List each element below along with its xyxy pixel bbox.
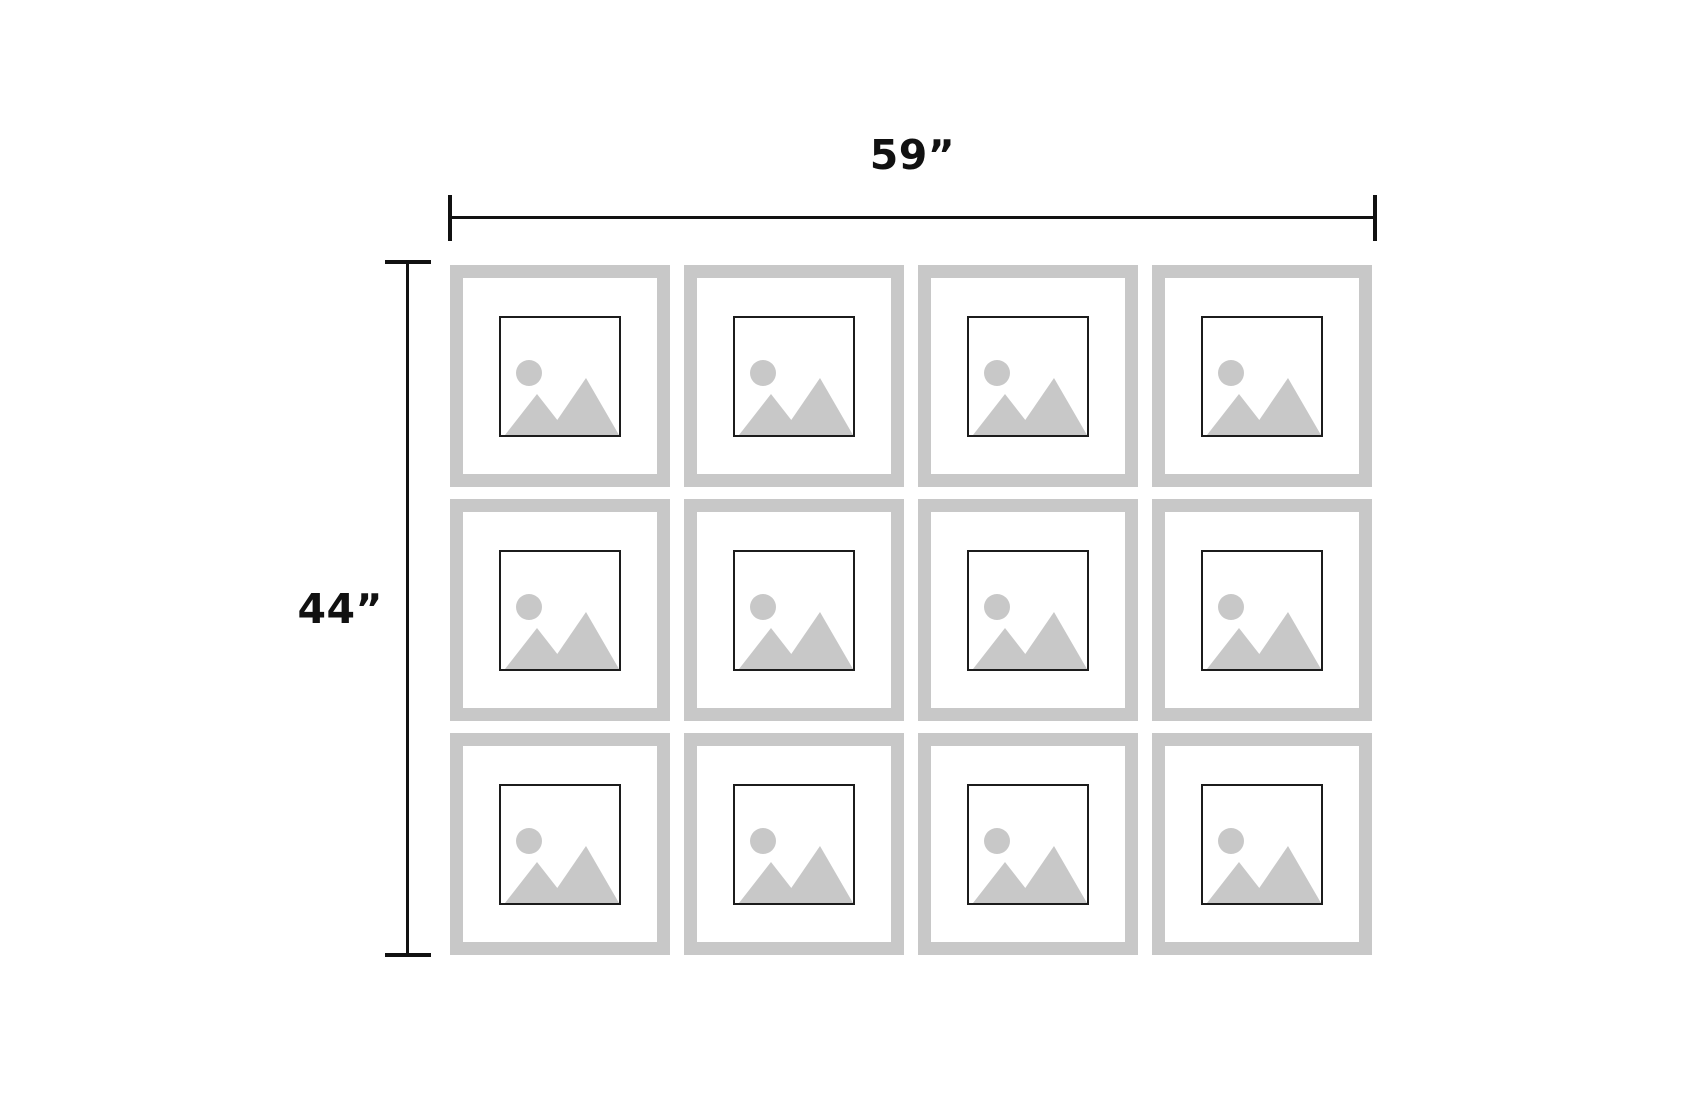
photo-placeholder [499,784,621,905]
image-placeholder-icon [735,318,853,435]
frames-grid [450,265,1372,955]
photo-placeholder [967,316,1089,437]
picture-frame [1152,733,1372,955]
photo-placeholder [499,550,621,671]
picture-frame [684,265,904,487]
photo-placeholder [1201,316,1323,437]
picture-frame [684,733,904,955]
image-placeholder-icon [969,552,1087,669]
photo-placeholder [733,550,855,671]
width-dimension-line [450,216,1375,219]
image-placeholder-icon [969,318,1087,435]
height-dimension-label: 44” [233,585,383,633]
image-placeholder-icon [735,786,853,903]
picture-frame [1152,499,1372,721]
photo-placeholder [499,316,621,437]
width-dimension-label: 59” [450,131,1375,179]
image-placeholder-icon [1203,786,1321,903]
picture-frame [684,499,904,721]
picture-frame [450,733,670,955]
picture-frame [918,265,1138,487]
picture-frame [450,499,670,721]
height-dimension-line [406,262,409,955]
picture-frame [1152,265,1372,487]
width-dimension-right-tick [1373,195,1377,241]
picture-frame [450,265,670,487]
image-placeholder-icon [501,552,619,669]
picture-frame [918,733,1138,955]
image-placeholder-icon [735,552,853,669]
photo-placeholder [1201,784,1323,905]
image-placeholder-icon [1203,552,1321,669]
width-dimension-left-tick [448,195,452,241]
image-placeholder-icon [969,786,1087,903]
gallery-wall-dimension-diagram: 59” 44” [0,0,1700,1100]
height-dimension-top-tick [385,260,431,264]
image-placeholder-icon [1203,318,1321,435]
picture-frame [918,499,1138,721]
photo-placeholder [733,316,855,437]
image-placeholder-icon [501,318,619,435]
height-dimension-bottom-tick [385,953,431,957]
photo-placeholder [967,550,1089,671]
photo-placeholder [1201,550,1323,671]
photo-placeholder [967,784,1089,905]
image-placeholder-icon [501,786,619,903]
photo-placeholder [733,784,855,905]
